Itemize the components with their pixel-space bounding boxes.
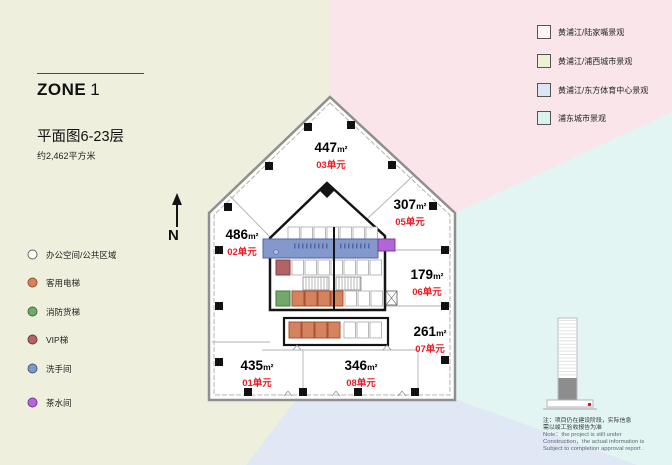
tower-marker bbox=[588, 403, 591, 406]
passenger-elevator-swatch-icon bbox=[27, 277, 38, 288]
unit-label-07: 261m² 07单元 bbox=[414, 323, 447, 354]
note-line-zh2: 需以竣工验收报告为准 bbox=[543, 425, 663, 432]
unit-area: 447 bbox=[315, 140, 338, 155]
shaft-x-box bbox=[386, 291, 397, 305]
floor-plan-page: ZONE1 平面图6-23层 约2,462平方米 N 办公空间/公共区域 客用电… bbox=[0, 0, 672, 465]
unit-area-sqm: m² bbox=[367, 362, 377, 372]
view-label: 黄浦江/浦西城市景观 bbox=[558, 56, 632, 67]
unit-area-sqm: m² bbox=[337, 144, 347, 154]
vip-elevator-swatch-icon bbox=[27, 334, 38, 345]
lower-band-rooms bbox=[344, 322, 382, 338]
legend-item-fire-elevator: 消防货梯 bbox=[27, 306, 80, 317]
passenger-elevator-bank-2 bbox=[289, 322, 340, 338]
legend-label: 洗手间 bbox=[46, 363, 72, 375]
unit-label-01: 435m² 01单元 bbox=[241, 357, 274, 388]
view-swatch-icon bbox=[537, 83, 551, 97]
legend-item-passenger-elevator: 客用电梯 bbox=[27, 277, 80, 288]
unit-label-03: 447m² 03单元 bbox=[315, 139, 348, 170]
legend-item-vip-elevator: VIP梯 bbox=[27, 334, 68, 345]
unit-number: 02单元 bbox=[226, 248, 259, 257]
restroom-fixture bbox=[274, 250, 279, 255]
legend-label: 茶水间 bbox=[46, 397, 72, 409]
passenger-elevator-bank-1 bbox=[292, 291, 343, 306]
fire-elevator-swatch-icon bbox=[27, 306, 38, 317]
view-label: 黄浦江/陆家嘴景观 bbox=[558, 27, 624, 38]
scene-graphic bbox=[0, 0, 672, 465]
core-rooms-row-lower bbox=[345, 291, 383, 306]
view-item-puxi: 黄浦江/浦西城市景观 bbox=[537, 54, 632, 68]
legend-label: 办公空间/公共区域 bbox=[46, 249, 116, 261]
unit-area-sqm: m² bbox=[436, 328, 446, 338]
view-swatch-icon bbox=[537, 111, 551, 125]
unit-number: 01单元 bbox=[241, 379, 274, 388]
pantry-swatch-icon bbox=[27, 397, 38, 408]
unit-area: 307 bbox=[394, 197, 417, 212]
view-swatch-icon bbox=[537, 25, 551, 39]
restroom-swatch-icon bbox=[27, 363, 38, 374]
unit-number: 06单元 bbox=[411, 288, 444, 297]
unit-number: 07单元 bbox=[414, 345, 447, 354]
title-rule bbox=[37, 73, 144, 74]
unit-label-05: 307m² 05单元 bbox=[394, 196, 427, 227]
unit-area-sqm: m² bbox=[263, 362, 273, 372]
legend-label: 消防货梯 bbox=[46, 306, 80, 318]
note-line-zh1: 注：项目仍在建设阶段，实际信息 bbox=[543, 418, 663, 425]
unit-label-06: 179m² 06单元 bbox=[411, 266, 444, 297]
unit-number: 08单元 bbox=[345, 379, 378, 388]
view-item-lujiazui: 黄浦江/陆家嘴景观 bbox=[537, 25, 624, 39]
disclaimer-note: 注：项目仍在建设阶段，实际信息 需以竣工验收报告为准 Note：the proj… bbox=[543, 418, 663, 453]
core-rooms-row-top bbox=[288, 227, 378, 239]
unit-area-sqm: m² bbox=[416, 201, 426, 211]
pantry-block bbox=[378, 239, 395, 251]
view-item-pudong: 浦东城市景观 bbox=[537, 111, 606, 125]
north-label: N bbox=[168, 227, 179, 244]
unit-area: 261 bbox=[414, 324, 437, 339]
zone-title: ZONE1 bbox=[37, 80, 100, 100]
plan-total-area: 约2,462平方米 bbox=[37, 149, 96, 162]
unit-number: 03单元 bbox=[315, 161, 348, 170]
office-swatch-icon bbox=[27, 249, 38, 260]
unit-label-08: 346m² 08单元 bbox=[345, 357, 378, 388]
plan-title: 平面图6-23层 bbox=[37, 125, 124, 146]
legend-label: 客用电梯 bbox=[46, 277, 80, 289]
view-swatch-icon bbox=[537, 54, 551, 68]
view-item-sports-center: 黄浦江/东方体育中心景观 bbox=[537, 83, 648, 97]
note-line-en1: Note：the project is still under bbox=[543, 432, 663, 439]
unit-label-02: 486m² 02单元 bbox=[226, 226, 259, 257]
unit-number: 05单元 bbox=[394, 218, 427, 227]
note-line-en2: Construction，the actual information is bbox=[543, 439, 663, 446]
legend-item-restroom: 洗手间 bbox=[27, 363, 72, 374]
unit-area: 179 bbox=[411, 267, 434, 282]
core-rooms-row-middle bbox=[292, 260, 382, 275]
view-label: 浦东城市景观 bbox=[558, 113, 606, 124]
vip-elevator-block bbox=[276, 260, 290, 275]
unit-area: 435 bbox=[241, 358, 264, 373]
tower-zone-highlight bbox=[559, 378, 577, 400]
fire-elevator-block bbox=[276, 291, 290, 306]
zone-number: 1 bbox=[90, 80, 100, 99]
zone-word: ZONE bbox=[37, 80, 86, 99]
unit-area: 346 bbox=[345, 358, 368, 373]
unit-area: 486 bbox=[226, 227, 249, 242]
legend-item-pantry: 茶水间 bbox=[27, 397, 72, 408]
unit-area-sqm: m² bbox=[433, 271, 443, 281]
unit-area-sqm: m² bbox=[248, 231, 258, 241]
note-line-en3: Subject to completion approval report . bbox=[543, 446, 663, 453]
legend-label: VIP梯 bbox=[46, 334, 68, 346]
legend-item-office: 办公空间/公共区域 bbox=[27, 249, 116, 260]
view-label: 黄浦江/东方体育中心景观 bbox=[558, 85, 648, 96]
